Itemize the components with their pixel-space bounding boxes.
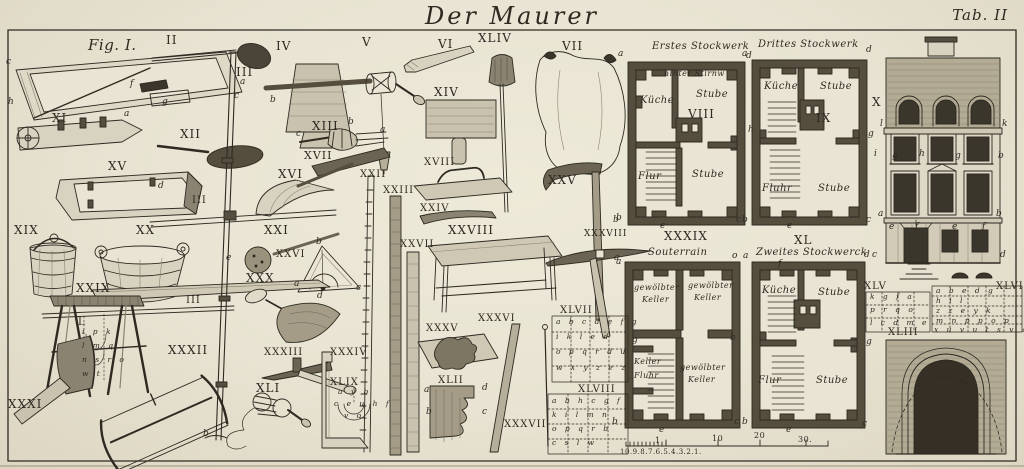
figure-numeral: III bbox=[186, 296, 201, 306]
figure-numeral: XXIX bbox=[76, 282, 110, 294]
script-label: gewölbter bbox=[680, 364, 725, 372]
script-label: Keller bbox=[688, 376, 715, 384]
figure-numeral: XXVII bbox=[400, 240, 434, 250]
figure-numeral: XXXI bbox=[8, 398, 42, 410]
script-label: Stube bbox=[696, 90, 728, 100]
letter-mark: c bbox=[866, 216, 871, 225]
letter-mark: h bbox=[730, 334, 736, 343]
letter-mark: a bbox=[424, 386, 429, 395]
letter-mark: h bbox=[748, 126, 754, 135]
figure-numeral: XLIII bbox=[888, 328, 919, 338]
figure-numeral: XXXV bbox=[426, 324, 459, 334]
letter-mark: d bbox=[482, 384, 488, 393]
script-label: Stube bbox=[818, 288, 850, 298]
script-label: Flur bbox=[638, 172, 661, 182]
letter-mark: g bbox=[868, 130, 874, 139]
figure-numeral: XXXVIII bbox=[584, 230, 627, 239]
figure-numeral: IV bbox=[276, 40, 291, 52]
letter-mark: c bbox=[872, 251, 877, 260]
letter-mark: c bbox=[6, 58, 11, 67]
script-label: gewölbter bbox=[688, 282, 733, 290]
letter-mark: b bbox=[996, 210, 1002, 219]
letter-mark: i bbox=[874, 150, 877, 159]
letter-mark: e bbox=[889, 223, 894, 232]
figure-numeral: XXIV bbox=[420, 204, 449, 214]
figure-numeral: VII bbox=[562, 40, 583, 52]
grid-letter-row: o p q r d u bbox=[556, 348, 628, 356]
figure-numeral: XX bbox=[136, 224, 155, 236]
script-label: Fluhr bbox=[634, 372, 659, 380]
scale-number: 20 bbox=[754, 432, 765, 440]
letter-mark: a bbox=[614, 254, 619, 263]
script-label: gewölbter bbox=[634, 284, 679, 292]
letter-mark: g bbox=[955, 152, 961, 161]
letter-mark: a bbox=[742, 50, 747, 59]
figure-numeral: XLVIII bbox=[578, 385, 616, 395]
letter-mark: b bbox=[270, 96, 276, 105]
grid-letter-row: l c d m e bbox=[870, 319, 930, 327]
figure-numeral: XLIV bbox=[478, 32, 512, 44]
figure-numeral: XVIII bbox=[424, 158, 455, 168]
letter-mark: b bbox=[348, 118, 354, 127]
letter-mark: l bbox=[880, 120, 883, 129]
grid-letter-row: a b h c g f bbox=[552, 397, 623, 405]
script-label: Stube bbox=[820, 82, 852, 92]
figure-numeral: XXI bbox=[264, 224, 289, 236]
script-label: Keller bbox=[642, 296, 669, 304]
letter-mark: d bbox=[864, 251, 870, 260]
script-label: Stube bbox=[818, 184, 850, 194]
script-label: Drittes Stockwerk bbox=[758, 40, 859, 50]
letter-mark: f bbox=[915, 223, 918, 232]
script-label: Keller bbox=[694, 294, 721, 302]
figure-numeral: XXII bbox=[360, 170, 386, 180]
scale-number: 10.9.8.7.6.5.4.3.2.1. bbox=[620, 449, 702, 456]
letter-mark: k bbox=[1002, 120, 1007, 129]
letter-mark: c bbox=[862, 420, 867, 429]
letter-mark: g bbox=[162, 98, 168, 107]
figure-numeral: XLI bbox=[256, 382, 280, 394]
letter-mark: h bbox=[919, 150, 925, 159]
grid-letter-row: p r q o bbox=[870, 306, 916, 314]
figure-numeral: XXXIII bbox=[264, 348, 303, 358]
letter-mark: e bbox=[786, 426, 791, 435]
script-label: Stube bbox=[816, 376, 848, 386]
script-label: Küche bbox=[640, 96, 674, 106]
figure-numeral: III bbox=[192, 196, 207, 206]
letter-mark: g bbox=[866, 338, 872, 347]
letter-mark: c bbox=[296, 130, 301, 139]
figure-numeral: XI bbox=[52, 112, 67, 124]
grid-letter-row: z z e y k bbox=[936, 307, 994, 315]
figure-numeral: XIII bbox=[312, 120, 339, 132]
letter-mark: e bbox=[952, 223, 957, 232]
letter-mark: e bbox=[659, 426, 664, 435]
scale-number: 1 bbox=[655, 437, 661, 445]
figure-numeral: XVI bbox=[278, 168, 303, 180]
figure-numeral: XLII bbox=[438, 376, 464, 386]
letter-mark: a bbox=[294, 280, 299, 289]
grid-letter-row: c s l w bbox=[552, 439, 597, 447]
figure-numeral: XXXVII bbox=[504, 420, 546, 430]
figure-numeral: XXVIII bbox=[448, 224, 494, 236]
grid-letter-row: w x y z e z bbox=[556, 364, 628, 372]
figure-numeral: XXXVI bbox=[478, 314, 516, 324]
figure-numeral: XXIII bbox=[383, 186, 414, 196]
figure-numeral: XLVII bbox=[560, 306, 593, 316]
grid-letter-row: m n p p o p bbox=[936, 317, 1012, 325]
figure-numeral: XXXIV bbox=[330, 348, 368, 358]
figure-numeral: XVII bbox=[304, 150, 332, 161]
grid-letter-row: i p k bbox=[82, 328, 114, 336]
letter-mark: b bbox=[426, 408, 432, 417]
script-label: Küche bbox=[762, 286, 796, 296]
script-label: Stube bbox=[692, 170, 724, 180]
letter-mark: b bbox=[742, 418, 748, 427]
letter-mark: b bbox=[998, 152, 1004, 161]
grid-letter-row: a b e d g bbox=[936, 287, 996, 295]
grid-letter-row: k i l m n bbox=[552, 411, 610, 419]
grid-letter-row: c e u h f bbox=[334, 400, 392, 408]
figure-numeral: XXXIX bbox=[664, 230, 708, 242]
letter-mark: b bbox=[612, 418, 618, 427]
figure-numeral: XLV bbox=[864, 282, 887, 292]
letter-mark: a bbox=[618, 50, 623, 59]
grid-letter-row: w t bbox=[82, 370, 103, 378]
script-label: Souterrain bbox=[648, 248, 707, 258]
figure-numeral: XIX bbox=[14, 224, 39, 236]
labels-layer: Fig. I.IIIIIIVVVIXLIVVIIXIXIIXIIIXIVXVXV… bbox=[0, 0, 1024, 469]
figure-numeral: II bbox=[166, 34, 177, 46]
figure-numeral: XIV bbox=[434, 86, 459, 98]
figure-numeral: XXX bbox=[246, 272, 275, 284]
letter-mark: f bbox=[982, 223, 985, 232]
figure-numeral: VI bbox=[438, 38, 453, 50]
letter-mark: b bbox=[742, 216, 748, 225]
letter-mark: a bbox=[124, 110, 129, 119]
letter-mark: f bbox=[778, 260, 781, 269]
figure-numeral: IX bbox=[816, 112, 831, 124]
grid-letter-row: h i l bbox=[936, 297, 965, 305]
grid-letter-row: n s r o bbox=[82, 356, 127, 364]
grid-letter-row: k g f a bbox=[870, 293, 915, 301]
engraving-plate: Der Maurer Tab. II Fig. I.IIIIIIVVVIXLIV… bbox=[0, 0, 1024, 469]
grid-letter-row: v o bbox=[344, 412, 364, 420]
letter-mark: a bbox=[380, 126, 385, 135]
letter-mark: d bbox=[1000, 251, 1006, 260]
letter-mark: f bbox=[130, 80, 133, 89]
letter-mark: c bbox=[734, 418, 739, 427]
letter-mark: a bbox=[878, 210, 883, 219]
letter-mark: b bbox=[613, 216, 619, 225]
scale-number: 30. bbox=[798, 436, 812, 444]
figure-numeral: XL bbox=[794, 234, 813, 246]
grid-letter-row: i k l e d bbox=[556, 333, 611, 341]
letter-mark: h bbox=[8, 98, 14, 107]
script-label: Zweites Stockwerck bbox=[756, 248, 867, 258]
grid-letter-row: o p q r b bbox=[552, 425, 611, 433]
figure-numeral: XV bbox=[108, 160, 127, 172]
letter-mark: d bbox=[866, 46, 872, 55]
letter-mark: a bbox=[240, 78, 245, 87]
grid-letter-row: a y b bbox=[338, 388, 371, 396]
letter-mark: c bbox=[234, 92, 239, 101]
script-label: Fluhr bbox=[762, 184, 792, 194]
grid-letter-row: x u v u t s v q bbox=[934, 326, 1024, 334]
letter-mark: c bbox=[736, 216, 741, 225]
letter-mark: c bbox=[482, 408, 487, 417]
letter-mark: e bbox=[787, 222, 792, 231]
letter-mark: e bbox=[660, 222, 665, 231]
grid-letter-row: a b c d e f g bbox=[556, 318, 640, 326]
figure-numeral: XII bbox=[180, 128, 201, 140]
figure-numeral: XXVI bbox=[276, 250, 305, 260]
figure-numeral: VIII bbox=[688, 108, 715, 120]
letter-mark: g bbox=[892, 152, 898, 161]
letter-mark: d bbox=[158, 182, 164, 191]
script-label: Erstes Stockwerk bbox=[652, 42, 749, 52]
grid-letter-row: l m q bbox=[82, 342, 116, 350]
figure-numeral: XXV bbox=[548, 174, 577, 186]
script-label: Keller bbox=[634, 358, 661, 366]
letter-mark: o bbox=[732, 252, 737, 261]
letter-mark: d bbox=[317, 292, 323, 301]
scale-number: 10 bbox=[712, 435, 723, 443]
letter-mark: g bbox=[632, 336, 638, 345]
script-label: Fig. I. bbox=[88, 38, 137, 53]
letter-mark: b bbox=[316, 238, 322, 247]
script-label: hinter Stirnw bbox=[664, 70, 725, 78]
script-label: Flur bbox=[758, 376, 781, 386]
letter-mark: c bbox=[356, 284, 361, 293]
letter-mark: b bbox=[203, 430, 209, 439]
figure-numeral: X bbox=[872, 96, 882, 108]
figure-numeral: XXXII bbox=[168, 344, 208, 356]
letter-mark: e bbox=[226, 254, 231, 263]
figure-numeral: V bbox=[362, 36, 372, 48]
figure-numeral: XLVI bbox=[996, 282, 1024, 292]
script-label: Küche bbox=[764, 82, 798, 92]
letter-mark: a bbox=[743, 252, 748, 261]
